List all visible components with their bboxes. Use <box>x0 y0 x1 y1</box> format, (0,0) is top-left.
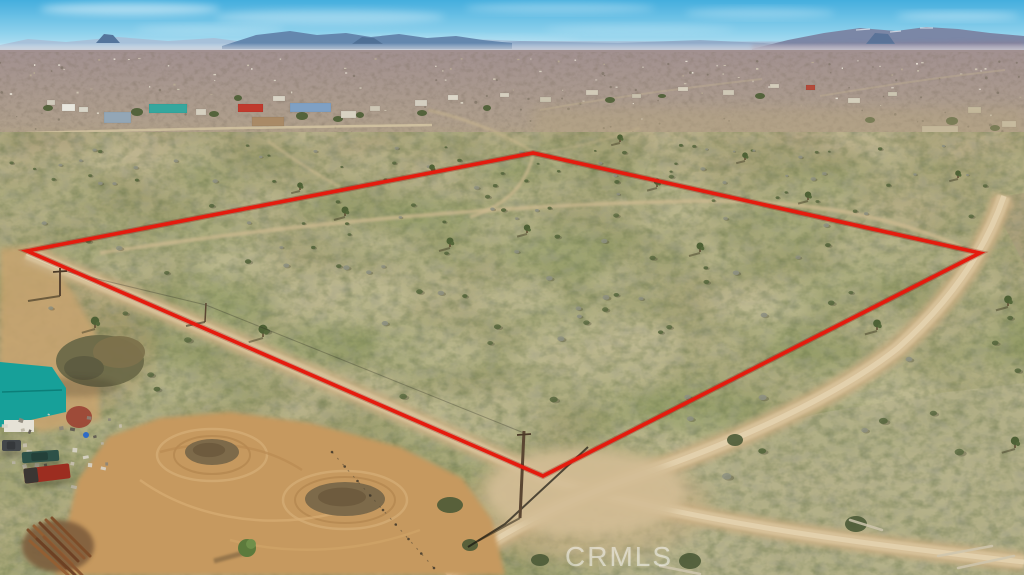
shrub <box>302 222 306 225</box>
aerial-property-photo: CRMLS <box>0 0 1024 575</box>
distant-speck <box>280 58 281 59</box>
joshua-tree-arm <box>746 156 749 159</box>
shrub <box>759 395 767 401</box>
distant-speck <box>375 58 377 60</box>
distant-speck <box>716 65 717 67</box>
distant-speck <box>857 60 858 61</box>
joshua-tree-arm <box>264 330 269 335</box>
distant-dot <box>486 95 488 97</box>
distant-dot <box>0 91 3 94</box>
shrub <box>283 263 289 267</box>
fence-post <box>394 523 397 526</box>
joshua-tree-arm <box>701 247 705 251</box>
distant-speck <box>633 103 634 104</box>
distant-speck <box>517 59 519 60</box>
shrub <box>930 411 937 416</box>
shrub <box>785 175 788 177</box>
distant-speck <box>384 110 386 111</box>
distant-speck <box>880 105 881 106</box>
shrub <box>555 235 561 239</box>
distant-speck <box>445 80 447 81</box>
shrub <box>490 207 494 210</box>
shrub <box>279 246 283 249</box>
town-building <box>806 85 815 90</box>
distant-dot <box>997 91 1000 94</box>
shrub <box>1007 316 1013 320</box>
shrub <box>669 175 674 179</box>
shrub <box>457 159 462 162</box>
shrub <box>245 259 251 263</box>
distant-dot <box>35 128 37 130</box>
shrub <box>679 144 683 147</box>
shrub <box>752 150 755 152</box>
town-tree <box>209 111 219 117</box>
shrub <box>493 184 498 187</box>
town-tree <box>755 93 765 99</box>
distant-speck <box>738 77 740 78</box>
shrub <box>712 199 716 202</box>
distant-speck <box>291 92 292 94</box>
shrub <box>58 164 62 167</box>
shrub <box>785 191 788 193</box>
junk-item <box>88 463 93 467</box>
shrub <box>42 221 47 225</box>
distant-dot <box>635 89 637 91</box>
distant-speck <box>344 68 346 69</box>
cloud <box>545 25 735 33</box>
shrub <box>853 210 858 213</box>
shrub <box>112 182 116 185</box>
distant-speck <box>684 83 686 84</box>
fence-post <box>369 494 372 497</box>
shrub <box>666 325 672 329</box>
shrub <box>886 184 891 187</box>
town-building <box>678 87 688 91</box>
town-building <box>632 94 641 98</box>
large-tree <box>64 356 104 380</box>
distant-speck <box>811 62 813 63</box>
shrub <box>88 174 92 177</box>
town-building <box>770 84 779 88</box>
distant-dot <box>689 71 692 74</box>
distant-dot <box>667 63 669 65</box>
distant-dot <box>830 72 831 73</box>
shrub <box>311 246 316 249</box>
shrub <box>494 324 501 329</box>
junk-item <box>101 442 104 445</box>
shrub <box>399 394 407 399</box>
shrub <box>594 150 597 152</box>
town-building <box>238 104 263 112</box>
distant-speck <box>562 90 563 91</box>
shrub <box>92 149 96 152</box>
shrub <box>1015 368 1022 373</box>
junk-item <box>12 461 16 464</box>
distant-speck <box>892 74 893 76</box>
shrub <box>485 195 490 199</box>
distant-speck <box>274 80 276 81</box>
shrub <box>340 166 343 168</box>
town-tree <box>43 105 53 111</box>
distant-speck <box>582 101 584 102</box>
shrub <box>116 246 122 250</box>
suv <box>0 440 24 457</box>
shrub <box>438 291 444 295</box>
junk-item <box>87 416 92 420</box>
blue-barrel <box>83 432 89 438</box>
joshua-tree-arm <box>621 138 624 141</box>
town-building <box>370 106 380 111</box>
shrub <box>462 294 467 298</box>
shrub <box>501 172 505 175</box>
distant-speck <box>685 61 687 62</box>
shrub <box>246 144 249 146</box>
shrub <box>776 196 780 199</box>
shrub <box>692 145 696 148</box>
shrub <box>795 255 800 259</box>
shrub <box>48 306 53 310</box>
shrub <box>602 307 608 311</box>
town-building <box>341 111 356 118</box>
distant-speck <box>214 80 215 81</box>
shrub <box>601 239 607 243</box>
shrub <box>733 150 736 152</box>
shrub <box>366 270 371 274</box>
large-bush <box>679 553 701 569</box>
distant-dot <box>707 74 709 76</box>
joshua-tree-arm <box>301 186 304 189</box>
shrub <box>51 178 55 181</box>
shrub <box>822 172 827 175</box>
distant-speck <box>90 89 93 90</box>
shrub <box>825 243 831 247</box>
joshua-tree-arm <box>528 228 531 231</box>
shrub <box>622 151 627 154</box>
shrub <box>864 212 868 215</box>
distant-speck <box>917 70 919 71</box>
distant-dot <box>895 79 897 81</box>
distant-speck <box>149 86 150 88</box>
shrub <box>733 271 739 275</box>
fence-post <box>356 480 359 483</box>
town-building <box>79 107 88 112</box>
shrub <box>638 297 643 301</box>
town-tree <box>605 97 615 103</box>
shrub <box>613 213 619 217</box>
joshua-tree-arm <box>878 324 882 328</box>
joshua-tree-arm <box>1009 300 1013 304</box>
shrub <box>444 146 447 148</box>
distant-speck <box>842 67 843 69</box>
shrub <box>154 387 161 392</box>
distant-speck <box>247 65 249 66</box>
shrub <box>758 448 766 453</box>
shrub <box>828 151 831 153</box>
distant-speck <box>682 75 684 76</box>
fence-post <box>433 567 436 570</box>
shrub <box>444 252 449 255</box>
distant-speck <box>901 69 903 71</box>
distant-dot <box>520 109 522 111</box>
scene-svg <box>0 0 1024 575</box>
junk-item <box>72 448 77 453</box>
shrub <box>576 306 582 310</box>
distant-dot <box>609 86 611 88</box>
shrub <box>823 223 829 227</box>
shrub <box>583 320 589 324</box>
distant-dot <box>530 120 532 122</box>
shrub <box>828 301 835 306</box>
distant-dot <box>51 70 53 72</box>
distant-speck <box>530 59 531 60</box>
distant-speck <box>801 105 802 106</box>
cloud <box>40 3 220 15</box>
shrub <box>557 170 560 172</box>
shrub <box>879 418 888 424</box>
shrub <box>674 163 677 165</box>
distant-speck <box>76 92 78 94</box>
town-building <box>273 96 285 101</box>
town-building <box>723 90 734 95</box>
distant-speck <box>345 72 347 73</box>
fence-post <box>407 538 410 541</box>
distant-speck <box>34 64 35 66</box>
fence-post <box>382 509 385 512</box>
distant-dot <box>1018 76 1020 78</box>
shrub <box>79 159 83 162</box>
town-building <box>500 93 509 97</box>
shrub <box>577 315 582 319</box>
town-tree <box>296 112 308 120</box>
cloud <box>135 25 285 33</box>
small-tree-highlight <box>246 539 256 549</box>
distant-speck <box>10 93 12 95</box>
shrub <box>723 217 728 220</box>
distant-speck <box>435 66 436 67</box>
distant-speck <box>722 73 723 74</box>
distant-speck <box>603 64 604 65</box>
shrub <box>381 265 385 268</box>
shrub <box>212 179 217 183</box>
distant-speck <box>1020 97 1022 98</box>
distant-speck <box>98 59 100 61</box>
distant-dot <box>16 116 17 117</box>
shrub <box>184 337 192 342</box>
shrub <box>687 416 694 421</box>
distant-dot <box>496 79 498 81</box>
shrub <box>669 170 672 172</box>
town-building <box>104 112 131 123</box>
distant-dot <box>828 63 830 65</box>
junk-item <box>108 418 111 421</box>
town-building <box>848 98 860 103</box>
shrub <box>382 321 388 326</box>
fence-post <box>420 552 423 555</box>
town-building <box>586 90 598 95</box>
shrub <box>878 147 882 150</box>
shrub <box>416 289 423 294</box>
distant-speck <box>34 72 35 74</box>
distant-speck <box>981 70 982 71</box>
shrub <box>705 148 708 150</box>
distant-dot <box>657 100 659 102</box>
distant-dot <box>184 113 186 115</box>
distant-speck <box>213 74 216 75</box>
distant-speck <box>985 68 987 70</box>
distant-speck <box>891 87 894 88</box>
shrub <box>722 181 726 184</box>
distant-speck <box>879 66 880 67</box>
shrub <box>98 150 103 153</box>
town-tree <box>658 94 666 98</box>
shrub <box>336 264 342 268</box>
shrub <box>134 166 138 169</box>
shrub <box>815 151 819 154</box>
distant-speck <box>701 93 702 94</box>
junk-item <box>119 424 122 428</box>
shrub <box>811 177 816 181</box>
shrub <box>474 186 479 190</box>
shrub <box>955 449 964 456</box>
shrub <box>147 372 154 377</box>
town-building <box>888 92 897 96</box>
town-tree <box>356 112 364 118</box>
cloud <box>685 8 835 18</box>
pickup-truck-cab <box>23 467 39 484</box>
town-tree <box>417 110 427 116</box>
shrub <box>603 295 610 300</box>
town-building <box>47 100 55 105</box>
shrub <box>313 150 317 153</box>
distant-dot <box>1016 62 1018 64</box>
shrub <box>700 167 705 171</box>
shrub <box>658 330 663 334</box>
town-tree <box>483 105 491 111</box>
shrub <box>259 156 263 158</box>
distant-speck <box>975 68 977 70</box>
shrub <box>122 311 128 315</box>
distant-speck <box>616 87 618 88</box>
distant-dot <box>527 98 529 100</box>
shrub <box>614 180 619 184</box>
joshua-tree-arm <box>96 322 100 326</box>
distant-dot <box>474 101 477 104</box>
shrub <box>798 156 802 159</box>
distant-dot <box>756 60 758 62</box>
shrub <box>722 473 731 480</box>
shrub <box>550 397 558 403</box>
distant-speck <box>461 102 464 104</box>
shrub <box>33 168 36 170</box>
town-building <box>415 100 427 106</box>
distant-dot <box>353 75 356 78</box>
shrub <box>861 428 868 433</box>
distant-speck <box>173 84 175 86</box>
fence-post <box>331 451 334 454</box>
distant-speck <box>574 60 576 61</box>
joshua-tree-arm <box>1016 442 1020 446</box>
distant-speck <box>177 89 179 90</box>
junk-item <box>70 462 74 466</box>
shrub <box>848 291 853 294</box>
large-bush <box>437 497 463 513</box>
junk-item <box>105 462 108 465</box>
distant-speck <box>138 58 141 59</box>
distant-speck <box>461 58 463 59</box>
shrub <box>761 313 768 318</box>
distant-speck <box>442 70 443 72</box>
distant-dot <box>561 97 563 99</box>
shrub <box>598 162 602 165</box>
distant-dot <box>601 72 604 75</box>
shrub <box>247 221 251 224</box>
distant-dot <box>998 61 1000 63</box>
town-building <box>196 109 206 115</box>
shrub <box>514 250 519 254</box>
distant-dot <box>848 87 850 89</box>
distant-speck <box>558 61 560 63</box>
shrub <box>272 180 276 183</box>
junk-item <box>23 443 27 447</box>
town-building <box>448 95 458 100</box>
distant-speck <box>210 94 212 95</box>
distant-speck <box>450 68 452 70</box>
town-building <box>540 97 551 102</box>
distant-speck <box>642 67 643 68</box>
town-tree <box>234 95 242 101</box>
joshua-tree-arm <box>809 195 812 198</box>
shrub <box>992 341 999 346</box>
distant-dot <box>424 106 426 108</box>
distant-speck <box>916 63 918 65</box>
distant-speck <box>128 59 130 60</box>
shrub <box>617 193 621 196</box>
shrub <box>174 159 178 162</box>
town-tree <box>131 108 143 116</box>
distant-speck <box>168 65 169 66</box>
distant-speck <box>756 68 758 70</box>
dirt-mound-core <box>193 443 225 457</box>
shrub <box>515 217 519 220</box>
shrub <box>703 266 708 269</box>
cloud <box>896 12 1020 20</box>
distant-speck <box>836 98 838 99</box>
shrub <box>535 209 539 212</box>
junk-item <box>2 424 8 428</box>
distant-dot <box>920 96 922 98</box>
shrub <box>98 182 103 185</box>
shrub <box>703 280 709 284</box>
distant-speck <box>114 58 116 59</box>
shrub <box>966 174 969 176</box>
distant-dot <box>41 113 42 114</box>
shrub <box>9 161 13 164</box>
distant-speck <box>921 62 923 63</box>
shrub <box>537 163 540 165</box>
distant-speck <box>493 78 495 80</box>
distant-speck <box>251 68 252 70</box>
town-building <box>62 104 75 111</box>
shrub <box>209 204 215 208</box>
town-building <box>252 117 284 126</box>
shrub <box>546 276 553 281</box>
shrub <box>649 256 655 260</box>
shrub <box>815 200 819 203</box>
distant-dot <box>60 66 63 69</box>
shrub <box>392 161 396 164</box>
shrub <box>983 184 988 187</box>
shrub <box>906 357 913 362</box>
